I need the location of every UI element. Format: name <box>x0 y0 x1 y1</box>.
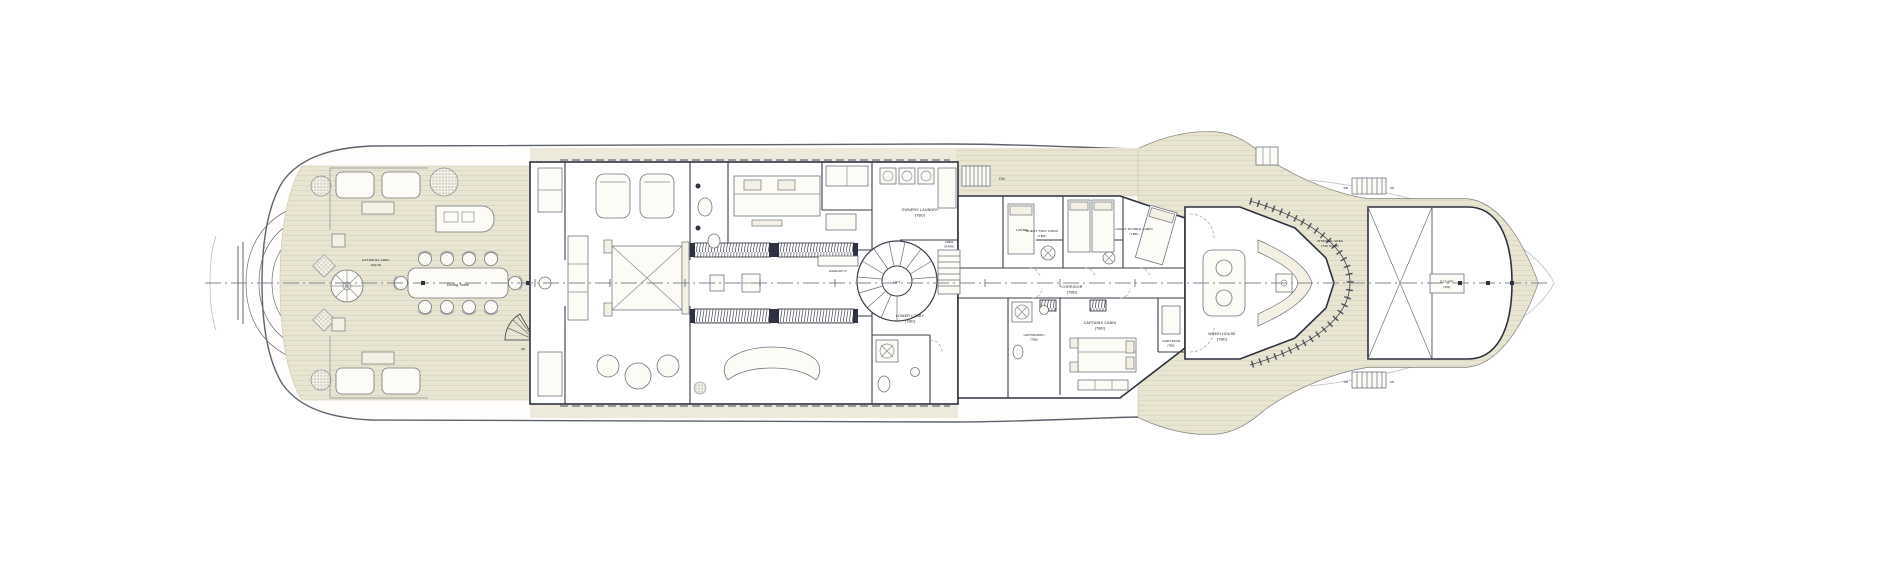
bar-counter <box>436 206 494 232</box>
crew-stair <box>938 250 960 294</box>
label-captains-cabin-2: (TBD) <box>1095 327 1106 331</box>
chart-room <box>1162 306 1180 334</box>
label-internal-area-1: INTERNAL AREA <box>1317 239 1344 243</box>
tv-lift-cabinet <box>818 256 858 266</box>
pilot-seat-1 <box>1216 260 1232 276</box>
label-guest-twin-2: (TBD) <box>1038 234 1047 238</box>
label-lift: LIFT <box>893 281 902 285</box>
round-table <box>331 270 363 302</box>
label-escape-1: ESCAPE <box>1440 280 1453 284</box>
tub-chair-2 <box>657 355 679 377</box>
lounge-table-bottom <box>362 352 394 364</box>
label-bow-up-bottom: UP <box>1390 380 1395 384</box>
mast-base-box <box>1256 147 1278 165</box>
label-chart-room-1: CHART ROOM <box>1162 339 1181 343</box>
deck-box-top <box>332 234 345 247</box>
label-wheelhouse-1: WHEELHOUSE <box>1208 332 1236 336</box>
label-corridor-1: CORRIDOR <box>1061 285 1082 289</box>
sunbed-top-2 <box>382 172 420 198</box>
label-guest-double-1: GUEST DOUBLE CABIN <box>1115 227 1152 231</box>
planter-circle-top <box>311 176 331 196</box>
sunbed-bottom-1 <box>336 368 374 394</box>
label-walkway-dn: DN <box>999 177 1005 181</box>
label-dining-table: Dining Table <box>447 283 469 287</box>
label-wheelhouse-2: (TBD) <box>1217 338 1228 342</box>
label-chart-room-2: (TBD) <box>1167 344 1174 348</box>
fore-walkway-stair <box>962 166 990 186</box>
label-crew-stairs-1: CREW <box>945 240 954 244</box>
chaise-2 <box>640 174 674 218</box>
label-captains-bath-2: (TBD) <box>1030 338 1037 342</box>
label-captains-cabin-1: CAPTAINS CABIN <box>1084 321 1117 325</box>
desk-c <box>826 214 856 230</box>
sunbed-top-1 <box>336 172 374 198</box>
sunbed-bottom-2 <box>382 368 420 394</box>
label-lower-lobby-1: LOWER LOBBY <box>896 314 925 318</box>
aft-lobby-sofa <box>538 352 562 396</box>
label-owners-laundry-1: OWNERS LAUNDRY <box>901 208 938 212</box>
ga-plan-canvas: Dining Table EXTERNAL AREA (SQ M) UP HIG… <box>0 0 1900 570</box>
label-lower-lobby-2: (TBD) <box>905 320 916 324</box>
label-corridor-2: (TBD) <box>1067 291 1078 295</box>
label-external-area-2: (SQ M) <box>371 263 382 267</box>
wardrobe-b <box>568 236 588 320</box>
label-escape-2: (DN) <box>1443 285 1450 289</box>
cocktail-table <box>625 363 651 389</box>
label-owners-laundry-2: (TBD) <box>915 214 926 218</box>
label-captains-bath-1: CAPTAINS BATH <box>1024 333 1045 337</box>
label-internal-area-2: (742 SQ M) <box>1321 244 1339 248</box>
ga-plan-svg: Dining Table EXTERNAL AREA (SQ M) UP HIG… <box>0 0 1900 570</box>
deck-box-bottom <box>332 318 345 331</box>
label-aft-stair-up: UP <box>521 347 526 351</box>
pilot-seat-2 <box>1216 290 1232 306</box>
label-guest-twin-1: GUEST TWIN CABIN <box>1026 229 1058 233</box>
captains-cabin <box>1070 338 1136 390</box>
planter-circle-bottom <box>311 370 331 390</box>
planter-bar <box>430 168 458 196</box>
bed-b <box>604 240 689 316</box>
label-bow-up-top: UP <box>1390 186 1395 190</box>
label-bed-tag: 2.0M BED <box>1016 228 1028 232</box>
label-guest-double-2: (TBD) <box>1130 232 1139 236</box>
tub-chair-1 <box>597 355 619 377</box>
lounge-table-top <box>362 202 394 214</box>
label-bow-dn-top: DN <box>1344 186 1349 190</box>
label-high-low-tv: HIGH/LOW TV <box>829 269 847 273</box>
label-crew-stairs-2: STAIRS <box>944 245 954 249</box>
label-external-area-1: EXTERNAL AREA <box>362 258 390 262</box>
chaise-1 <box>596 174 630 218</box>
plant-c <box>694 382 706 394</box>
label-bow-dn-bottom: DN <box>1344 380 1349 384</box>
